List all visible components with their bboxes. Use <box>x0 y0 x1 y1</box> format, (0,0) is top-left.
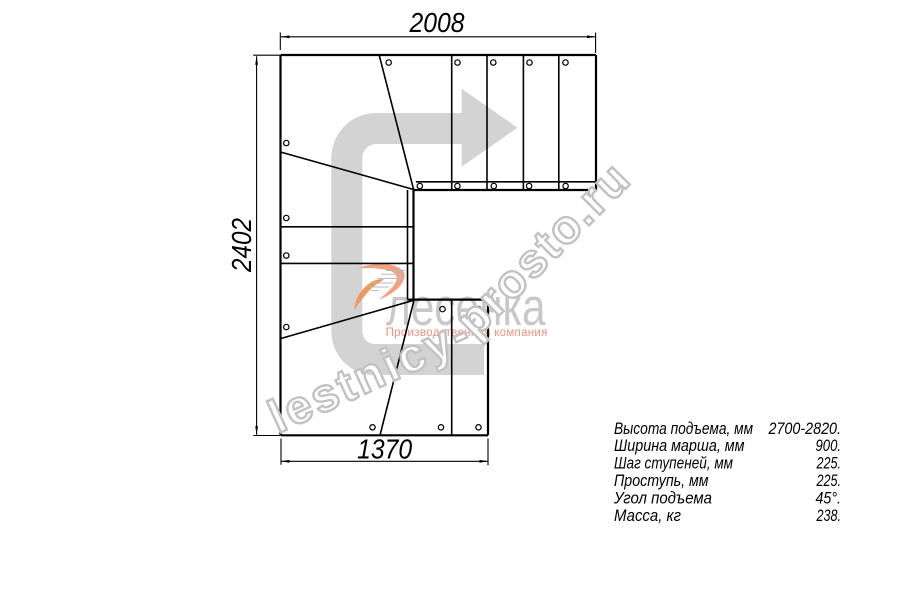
svg-text:1370: 1370 <box>357 433 413 464</box>
svg-text:225.: 225. <box>816 471 841 490</box>
svg-text:900.: 900. <box>816 436 842 455</box>
svg-text:225.: 225. <box>816 454 841 473</box>
svg-text:45°.: 45°. <box>816 488 842 507</box>
svg-text:Проступь, мм: Проступь, мм <box>614 471 709 490</box>
svg-text:2700-2820.: 2700-2820. <box>768 419 841 438</box>
svg-text:Высота подъема, мм: Высота подъема, мм <box>614 419 753 438</box>
svg-text:Масса, кг: Масса, кг <box>614 506 681 525</box>
svg-text:Угол подъема: Угол подъема <box>613 488 712 507</box>
svg-text:2402: 2402 <box>226 218 257 273</box>
svg-text:238.: 238. <box>816 506 841 525</box>
svg-text:Ширина марша, мм: Ширина марша, мм <box>614 436 745 455</box>
svg-text:2008: 2008 <box>409 7 466 38</box>
svg-text:Шаг ступеней, мм: Шаг ступеней, мм <box>614 454 733 473</box>
